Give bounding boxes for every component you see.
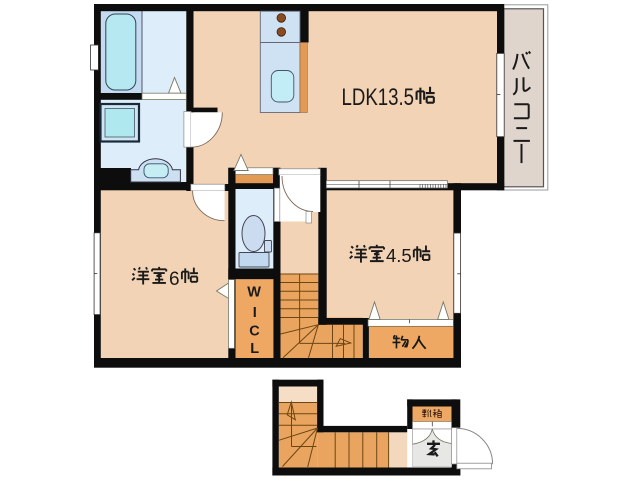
svg-text:I: I — [253, 305, 257, 321]
svg-text:4.5: 4.5 — [386, 245, 412, 266]
svg-text:6: 6 — [169, 269, 180, 290]
svg-text:C: C — [249, 324, 260, 340]
svg-text:LDK13.5: LDK13.5 — [342, 84, 415, 111]
svg-text:W: W — [247, 285, 261, 301]
svg-text:L: L — [250, 341, 259, 357]
